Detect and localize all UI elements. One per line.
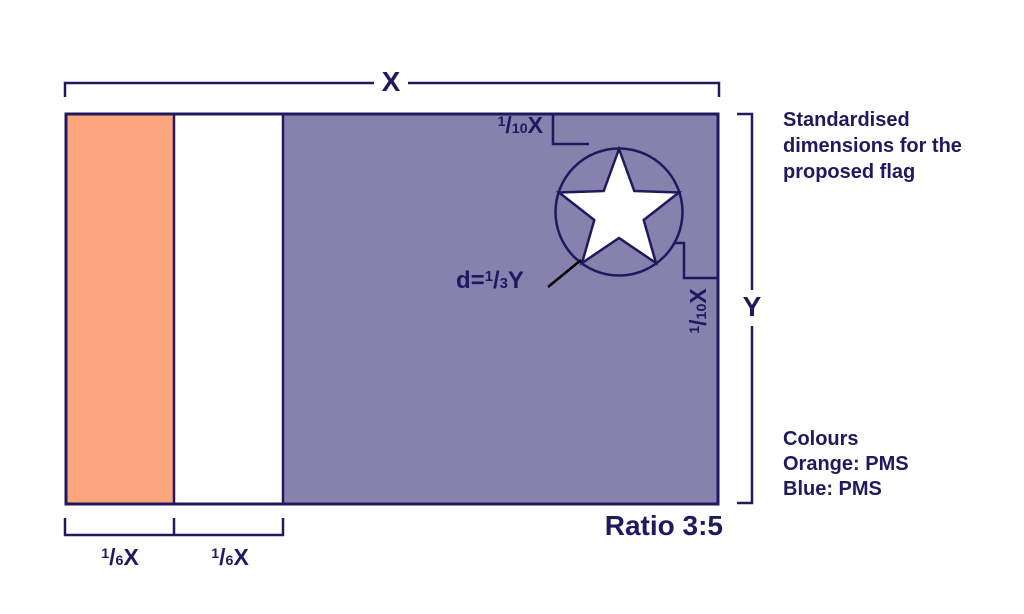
colours-line: Orange: PMS xyxy=(783,452,909,477)
x-dimension-label: X xyxy=(373,67,409,98)
diameter-label: d=1/3Y xyxy=(456,268,524,294)
diagram-artwork xyxy=(0,0,1024,614)
stripe-width-label-2: 1/6X xyxy=(190,545,270,570)
top-offset-label: 1/10X xyxy=(443,113,543,138)
caption-line: dimensions for the xyxy=(783,133,962,159)
colours-line: Colours xyxy=(783,427,909,452)
stripe-width-label-1: 1/6X xyxy=(80,545,160,570)
right-offset-label: 1/10X xyxy=(686,266,712,356)
stripe-width-bracket xyxy=(65,518,283,535)
caption-line: Standardised xyxy=(783,107,962,133)
colours-note: Colours Orange: PMS Blue: PMS xyxy=(783,427,909,502)
ratio-label: Ratio 3:5 xyxy=(523,511,723,542)
orange-stripe xyxy=(66,114,174,504)
flag-dimensions-diagram: X Y 1/10X 1/10X d=1/3Y 1/6X 1/6X Ratio 3… xyxy=(0,0,1024,614)
y-dimension-label: Y xyxy=(736,292,768,323)
caption: Standardised dimensions for the proposed… xyxy=(783,107,962,185)
colours-line: Blue: PMS xyxy=(783,477,909,502)
caption-line: proposed flag xyxy=(783,159,962,185)
